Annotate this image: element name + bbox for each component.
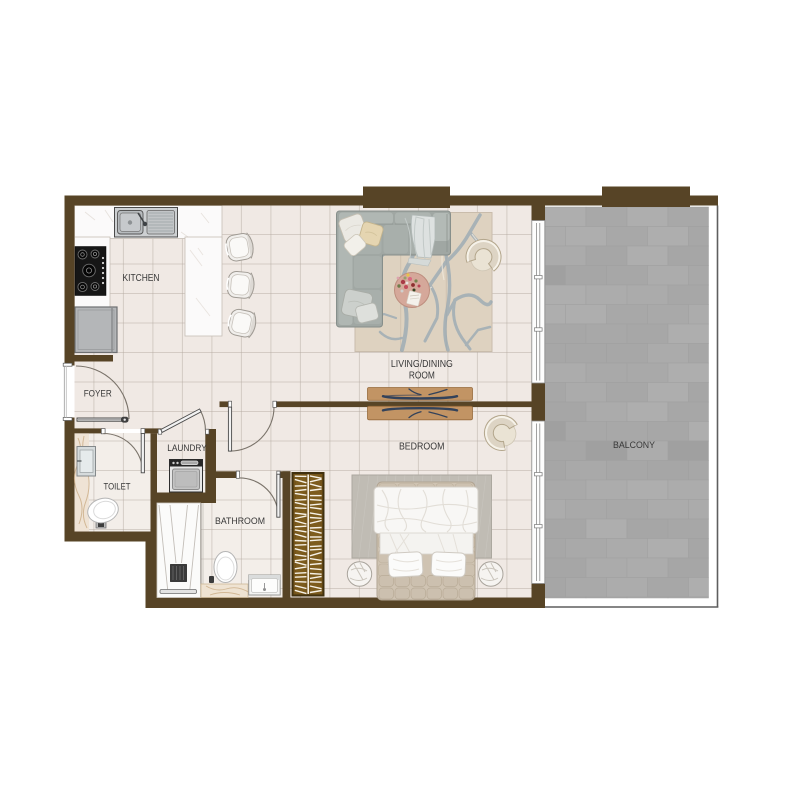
svg-text:FOYER: FOYER bbox=[84, 388, 112, 399]
svg-text:LIVING/DINING: LIVING/DINING bbox=[391, 358, 453, 370]
svg-text:KITCHEN: KITCHEN bbox=[123, 273, 160, 284]
svg-text:LAUNDRY: LAUNDRY bbox=[167, 443, 207, 453]
svg-text:BALCONY: BALCONY bbox=[613, 440, 656, 451]
svg-text:BEDROOM: BEDROOM bbox=[399, 441, 445, 453]
svg-text:BATHROOM: BATHROOM bbox=[215, 516, 265, 527]
svg-text:TOILET: TOILET bbox=[104, 482, 131, 492]
svg-text:ROOM: ROOM bbox=[409, 369, 435, 381]
